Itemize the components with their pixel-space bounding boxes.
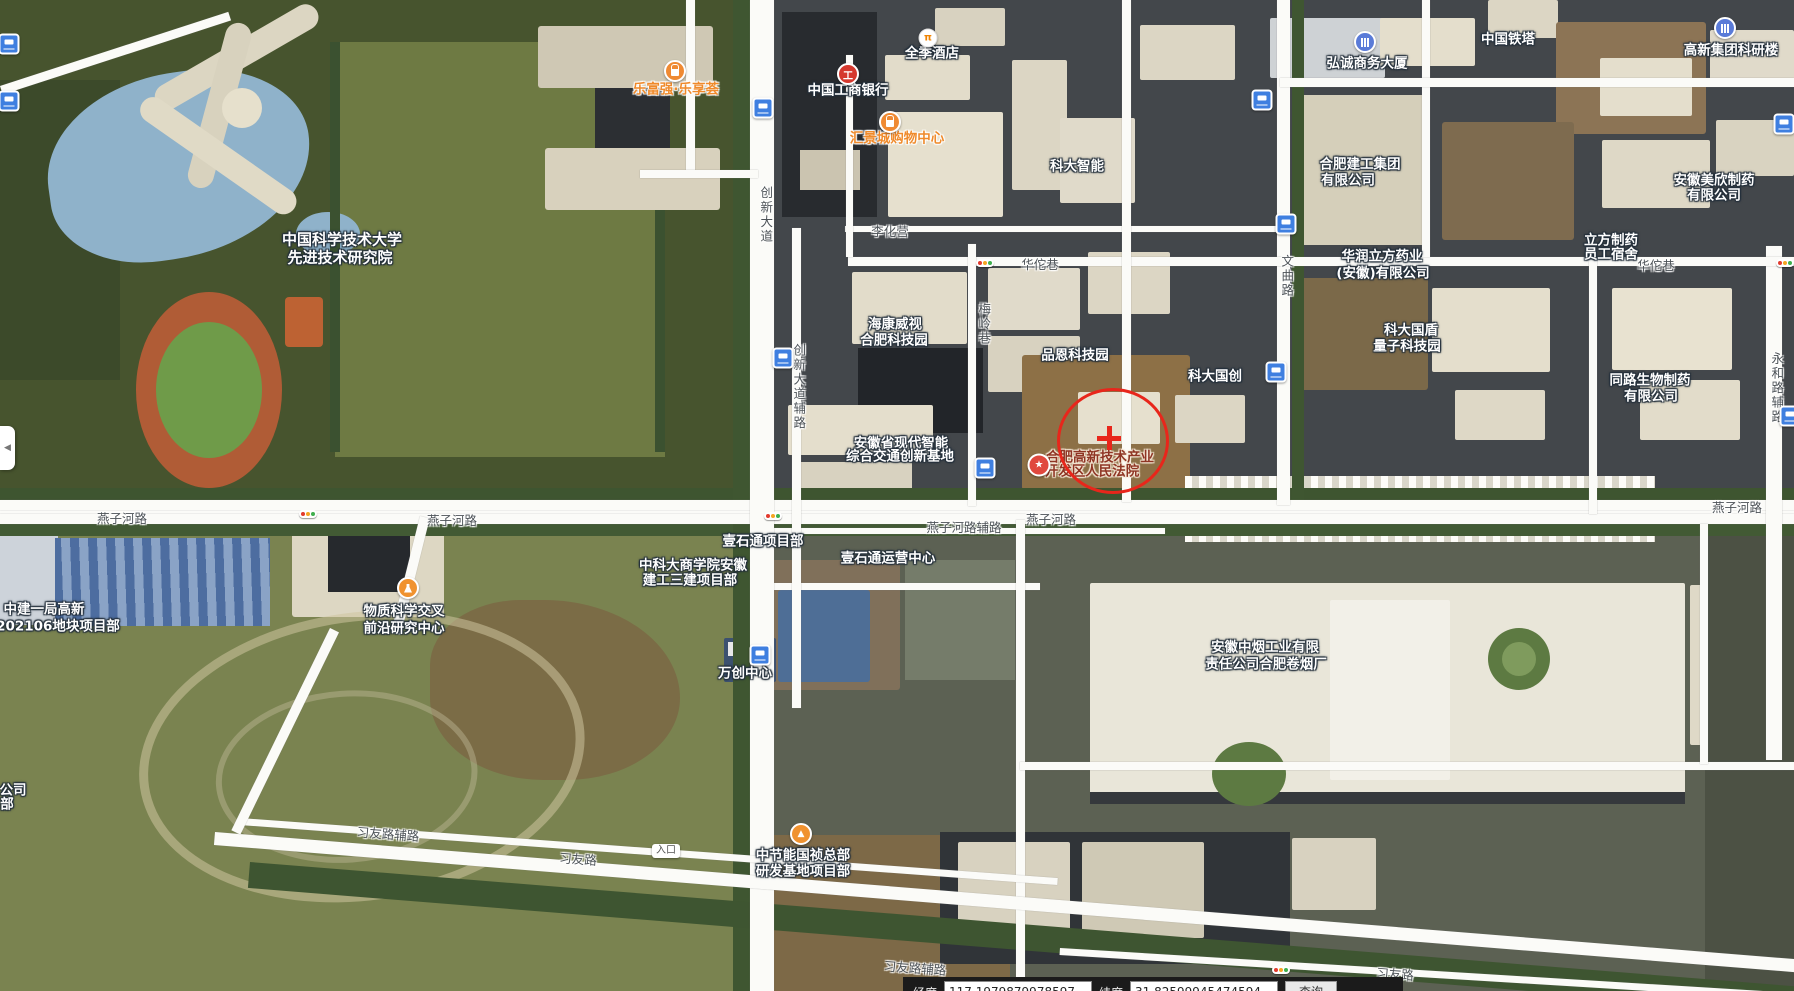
bus-stop-icon[interactable] bbox=[1276, 214, 1297, 235]
map-label: 202106地块项目部 bbox=[0, 620, 120, 634]
map-label: 中国铁塔 bbox=[1481, 33, 1535, 47]
map-label: 合肥科技园 bbox=[860, 334, 928, 348]
shopping-mall-icon[interactable] bbox=[664, 60, 686, 82]
road bbox=[1016, 520, 1025, 991]
terrain-patch bbox=[1082, 842, 1204, 938]
terrain-patch bbox=[222, 88, 262, 128]
traffic-light-icon bbox=[1272, 966, 1290, 974]
bus-stop-icon[interactable] bbox=[1780, 406, 1794, 427]
terrain-patch bbox=[1612, 288, 1732, 370]
terrain-patch bbox=[1090, 792, 1685, 804]
road bbox=[640, 170, 758, 178]
road-label: 创新大道辅路 bbox=[792, 344, 805, 431]
map-label: 有限公司 bbox=[1624, 390, 1678, 404]
icbc-bank-icon[interactable]: 工 bbox=[837, 63, 859, 85]
terrain-patch bbox=[935, 8, 1005, 46]
bus-stop-icon[interactable] bbox=[753, 98, 774, 119]
traffic-light-icon bbox=[1776, 259, 1794, 267]
map-label: 先进技术研究院 bbox=[287, 251, 392, 266]
road-label: 华佗巷 bbox=[1021, 259, 1059, 272]
latitude-input[interactable] bbox=[1130, 981, 1278, 991]
bus-stop-icon[interactable] bbox=[1266, 362, 1287, 383]
map-label: 研发基地项目部 bbox=[756, 865, 851, 879]
map-label: 科大智能 bbox=[1050, 160, 1104, 174]
bus-stop-icon[interactable] bbox=[0, 34, 20, 55]
map-label: 责任公司合肥卷烟厂 bbox=[1205, 658, 1327, 672]
satellite-map-canvas[interactable]: ◀ 经度 纬度 查询 中国科学技术大学先进技术研究院乐富强·乐享荟中国工商银行全… bbox=[0, 0, 1794, 991]
terrain-patch bbox=[55, 538, 270, 626]
road bbox=[845, 226, 1285, 232]
road-label: 燕子河路 bbox=[97, 513, 147, 526]
entrance-badge: 入口 bbox=[652, 844, 680, 858]
road-label: 李化营 bbox=[871, 226, 909, 239]
map-label: 前沿研究中心 bbox=[364, 622, 445, 636]
road bbox=[1277, 0, 1290, 505]
bus-stop-icon[interactable] bbox=[773, 348, 794, 369]
terrain-patch bbox=[885, 55, 970, 100]
road-label: 燕子河路 bbox=[1712, 502, 1762, 515]
road-label: 创新大道 bbox=[759, 186, 772, 244]
map-label: 海康威视 bbox=[868, 318, 922, 332]
map-label: 有限公司 bbox=[1321, 174, 1375, 188]
hotel-icon[interactable]: π bbox=[919, 29, 938, 48]
road-label: 燕子河路 bbox=[1026, 514, 1076, 527]
road-label: 习友路 bbox=[559, 852, 597, 867]
map-label: 汇景城购物中心 bbox=[850, 132, 945, 146]
map-label: 有限公司 bbox=[1687, 189, 1741, 203]
map-label: 万创中心 bbox=[718, 667, 772, 681]
map-label: 中国科学技术大学 bbox=[282, 233, 402, 248]
bus-stop-icon[interactable] bbox=[0, 91, 20, 112]
map-label: 建工三建项目部 bbox=[643, 574, 738, 588]
terrain-patch bbox=[285, 297, 323, 347]
road bbox=[1700, 524, 1708, 764]
map-label: (安徽)有限公司 bbox=[1336, 267, 1429, 281]
target-circle-annotation bbox=[1057, 388, 1169, 494]
bus-stop-icon[interactable] bbox=[750, 645, 771, 666]
terrain-patch bbox=[733, 0, 750, 991]
road bbox=[0, 511, 1794, 513]
terrain-patch bbox=[1175, 395, 1245, 443]
traffic-light-icon bbox=[299, 510, 317, 518]
terrain-patch bbox=[988, 268, 1080, 330]
map-label: 中建一局高新 bbox=[4, 603, 85, 617]
map-label: 华润立方药业 bbox=[1342, 250, 1423, 264]
terrain-patch bbox=[1432, 288, 1550, 372]
terrain-patch bbox=[1140, 25, 1235, 80]
bus-stop-icon[interactable] bbox=[975, 458, 996, 479]
panel-collapse-tab[interactable]: ◀ bbox=[0, 426, 15, 470]
terrain-patch bbox=[156, 322, 262, 458]
map-label: 量子科技园 bbox=[1373, 340, 1441, 354]
map-label: 高新集团科研楼 bbox=[1684, 44, 1779, 58]
terrain-patch bbox=[888, 112, 1003, 217]
road bbox=[1422, 0, 1430, 257]
map-label: 全季酒店 bbox=[905, 47, 959, 61]
map-label: 员工宿舍 bbox=[1584, 248, 1638, 262]
map-label: 安徽美欣制药 bbox=[1674, 174, 1755, 188]
latitude-label: 纬度 bbox=[1099, 981, 1123, 991]
map-label: 中国工商银行 bbox=[808, 84, 889, 98]
road bbox=[792, 228, 801, 708]
bus-stop-icon[interactable] bbox=[1774, 114, 1794, 135]
longitude-input[interactable] bbox=[944, 981, 1092, 991]
map-label: 壹石通运营中心 bbox=[841, 552, 936, 566]
map-label: 中节能国祯总部 bbox=[756, 849, 851, 863]
map-label: 乐富强·乐享荟 bbox=[633, 83, 719, 97]
terrain-patch bbox=[1330, 600, 1450, 780]
road bbox=[1020, 762, 1794, 770]
road-label: 华佗巷 bbox=[1637, 260, 1675, 273]
coordinate-statusbar: 经度 纬度 查询 bbox=[903, 977, 1403, 991]
map-label: 综合交通创新基地 bbox=[846, 450, 954, 464]
map-label: 弘诚商务大厦 bbox=[1327, 57, 1408, 71]
road-label: 燕子河路辅路 bbox=[926, 522, 1001, 535]
road-label: 文曲路 bbox=[1280, 254, 1293, 298]
traffic-light-icon bbox=[764, 512, 782, 520]
terrain-patch bbox=[1292, 0, 1304, 505]
terrain-patch bbox=[905, 560, 1015, 680]
bus-stop-icon[interactable] bbox=[1252, 90, 1273, 111]
terrain-patch bbox=[1502, 642, 1536, 676]
terrain-patch bbox=[1292, 838, 1376, 910]
court-poi-icon[interactable]: ★ bbox=[1028, 454, 1051, 477]
terrain-patch bbox=[1455, 390, 1545, 440]
terrain-patch bbox=[1600, 58, 1692, 116]
office-building-icon[interactable] bbox=[1714, 17, 1736, 39]
longitude-label: 经度 bbox=[913, 981, 937, 991]
shopping-mall-icon[interactable] bbox=[879, 111, 901, 133]
traffic-light-icon bbox=[976, 259, 994, 267]
terrain-patch bbox=[1212, 742, 1286, 806]
map-label: 合肥建工集团 bbox=[1320, 158, 1401, 172]
terrain-patch bbox=[1442, 122, 1574, 240]
road-label: 燕子河路 bbox=[427, 515, 477, 528]
map-label: 中科大商学院安徽 bbox=[639, 559, 747, 573]
office-building-icon[interactable] bbox=[1354, 31, 1376, 53]
map-label: 物质科学交叉 bbox=[364, 605, 445, 619]
road bbox=[750, 0, 774, 991]
construction-site-icon[interactable]: ▲ bbox=[790, 823, 812, 845]
map-label: 同路生物制药 bbox=[1610, 374, 1691, 388]
road bbox=[1766, 246, 1782, 760]
research-lab-icon[interactable] bbox=[397, 577, 419, 599]
road-label: 梅岭巷 bbox=[977, 302, 990, 346]
map-label: 科大国创 bbox=[1188, 370, 1242, 384]
map-label: 品恩科技园 bbox=[1041, 349, 1109, 363]
map-label: 安徽中烟工业有限 bbox=[1211, 641, 1319, 655]
query-button[interactable]: 查询 bbox=[1285, 981, 1337, 991]
crosshair-marker bbox=[1107, 426, 1112, 450]
map-label: 壹石通项目部 bbox=[723, 535, 804, 549]
map-label: 科大国盾 bbox=[1384, 324, 1438, 338]
collapse-arrow-icon: ◀ bbox=[4, 443, 11, 453]
road bbox=[1589, 260, 1597, 514]
road bbox=[1280, 78, 1794, 87]
map-label: 部 bbox=[0, 798, 14, 812]
